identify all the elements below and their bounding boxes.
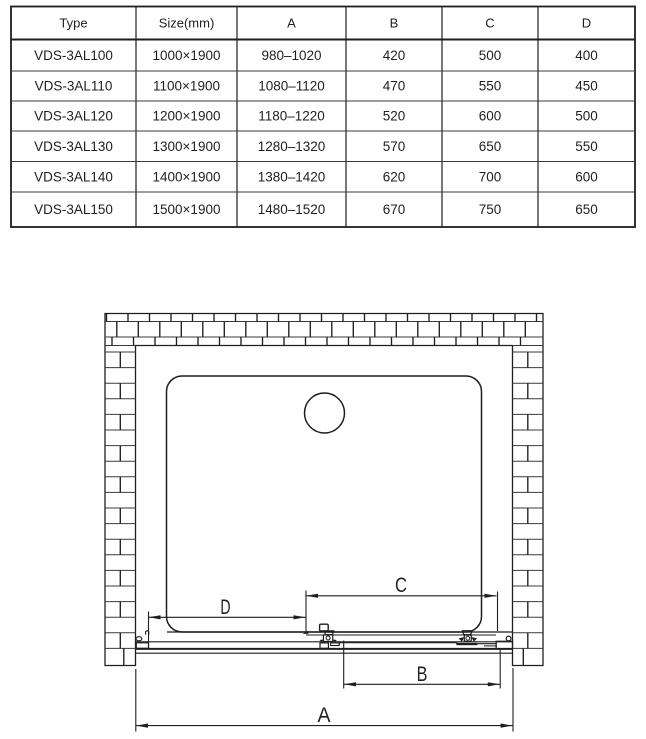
svg-text:B: B <box>390 16 399 31</box>
svg-text:980–1020: 980–1020 <box>261 48 321 63</box>
svg-text:C: C <box>485 16 494 31</box>
svg-text:550: 550 <box>479 79 502 94</box>
svg-text:1400×1900: 1400×1900 <box>153 170 221 185</box>
svg-text:VDS-3AL140: VDS-3AL140 <box>34 170 113 185</box>
svg-text:550: 550 <box>575 139 598 154</box>
svg-text:D: D <box>220 596 230 619</box>
svg-text:570: 570 <box>383 139 406 154</box>
svg-text:1500×1900: 1500×1900 <box>153 202 221 217</box>
svg-text:VDS-3AL150: VDS-3AL150 <box>34 202 113 217</box>
svg-text:620: 620 <box>383 170 406 185</box>
svg-text:A: A <box>287 16 296 31</box>
svg-text:650: 650 <box>479 139 502 154</box>
svg-text:750: 750 <box>479 202 502 217</box>
svg-text:450: 450 <box>575 79 598 94</box>
svg-text:700: 700 <box>479 170 502 185</box>
svg-text:500: 500 <box>479 48 502 63</box>
svg-text:1280–1320: 1280–1320 <box>258 139 326 154</box>
svg-text:Type: Type <box>59 16 87 31</box>
svg-text:520: 520 <box>383 109 406 124</box>
svg-text:1100×1900: 1100×1900 <box>153 79 220 94</box>
svg-text:1080–1120: 1080–1120 <box>258 79 325 94</box>
svg-text:VDS-3AL120: VDS-3AL120 <box>34 109 113 124</box>
svg-text:VDS-3AL100: VDS-3AL100 <box>34 48 113 63</box>
svg-text:C: C <box>395 574 407 597</box>
svg-text:500: 500 <box>575 109 598 124</box>
svg-text:VDS-3AL130: VDS-3AL130 <box>34 139 113 154</box>
svg-text:D: D <box>582 16 591 31</box>
svg-text:670: 670 <box>383 202 406 217</box>
svg-text:400: 400 <box>575 48 598 63</box>
svg-text:1180–1220: 1180–1220 <box>258 109 325 124</box>
svg-text:1200×1900: 1200×1900 <box>153 109 221 124</box>
svg-text:1480–1520: 1480–1520 <box>258 202 326 217</box>
svg-text:B: B <box>417 663 428 686</box>
svg-text:A: A <box>318 704 331 727</box>
svg-text:600: 600 <box>575 170 598 185</box>
svg-text:470: 470 <box>383 79 406 94</box>
svg-text:420: 420 <box>383 48 406 63</box>
svg-text:Size(mm): Size(mm) <box>159 16 215 31</box>
svg-text:650: 650 <box>575 202 598 217</box>
svg-text:1000×1900: 1000×1900 <box>153 48 221 63</box>
svg-text:1380–1420: 1380–1420 <box>258 170 326 185</box>
svg-text:VDS-3AL110: VDS-3AL110 <box>35 79 113 94</box>
svg-text:600: 600 <box>479 109 502 124</box>
svg-text:1300×1900: 1300×1900 <box>153 139 221 154</box>
